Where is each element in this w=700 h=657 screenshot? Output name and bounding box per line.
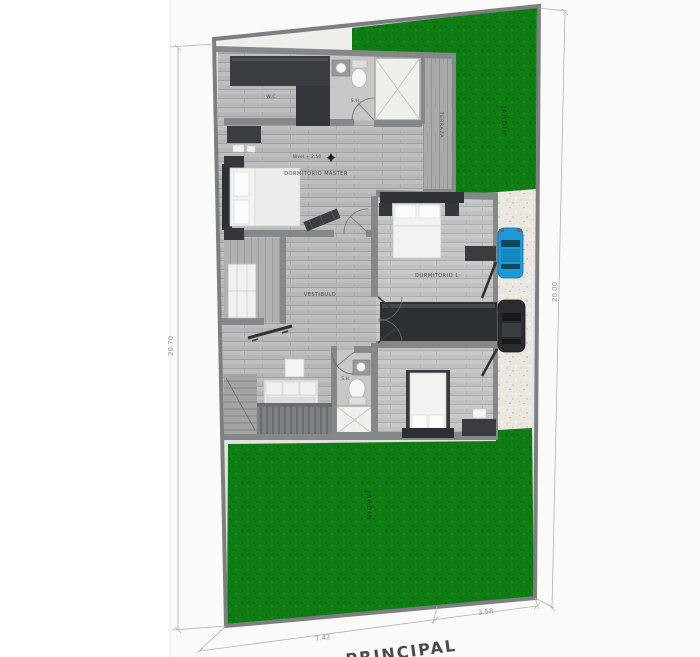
bath2-shower [336,406,373,434]
floor-plan-canvas: 20.70 20.00 7.42 3.58 W.C. S.H. TERRAZA … [0,0,700,657]
toilet-tank [352,60,367,68]
pillow [412,415,427,428]
pillow [234,200,249,224]
tail-light [517,229,522,232]
label-master-bedroom: DORMITORIO MASTER [284,171,348,177]
dim-left-label: 20.70 [167,336,175,356]
desk [465,246,496,261]
garden-bottom [227,427,534,624]
dresser [462,419,496,436]
tv [473,409,486,418]
site-plan-rendering: 20.70 20.00 7.42 3.58 W.C. S.H. TERRAZA … [0,0,700,657]
paper-margin [0,0,170,657]
nightstand [445,203,459,216]
pillow [429,415,444,428]
pillow [234,172,249,196]
toilet-bowl [352,69,367,88]
master-shower [375,58,420,120]
nook-cabinet [228,264,256,318]
label-bath2: S.H. [341,376,350,381]
label-bath-master: S.H. [351,98,362,104]
headboard [402,428,454,438]
label-garden-top: JARDIN [500,105,507,136]
label-wc: W.C. [266,94,278,100]
car-black [498,300,525,352]
headboard [380,192,464,203]
label-bedroom1: DORMITORIO 1 [415,273,459,279]
toilet-tank [349,397,366,405]
car-blue [498,228,523,278]
label-terrace: TERRAZA [438,111,444,139]
label-hall: VESTIBULO [304,292,336,298]
tail-light [499,229,504,232]
pillow [419,205,440,218]
label-garden-bottom: JARDIN [365,490,372,521]
nightstand [224,228,244,240]
pillow [395,205,416,218]
nightstand [379,203,392,216]
nightstand [224,156,244,168]
label-level-note: Nivel + 2.50 [293,154,322,159]
toilet-bowl [349,379,365,399]
dim-right-label: 20.00 [551,282,559,302]
coffee-table [285,359,304,377]
